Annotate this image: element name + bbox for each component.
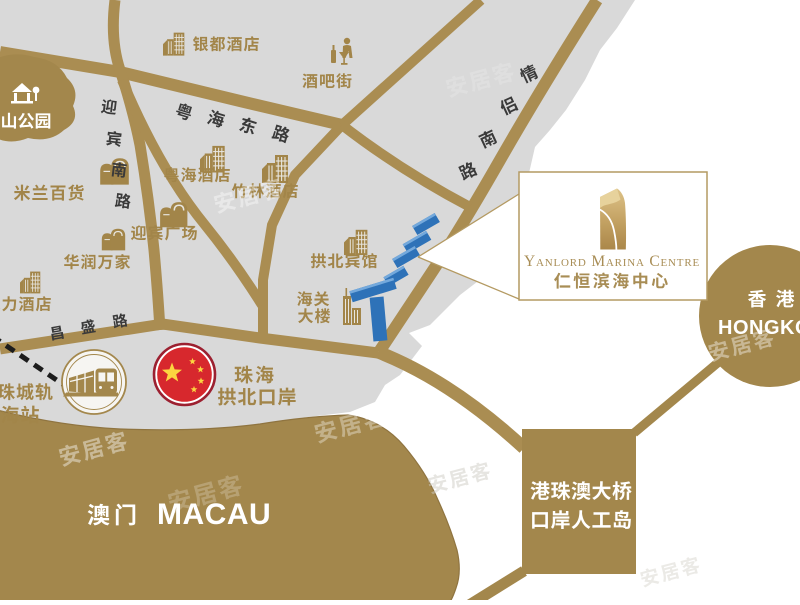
svg-text:MACAU: MACAU (157, 498, 271, 531)
svg-text:Yanlord Marina Centre: Yanlord Marina Centre (524, 253, 700, 270)
